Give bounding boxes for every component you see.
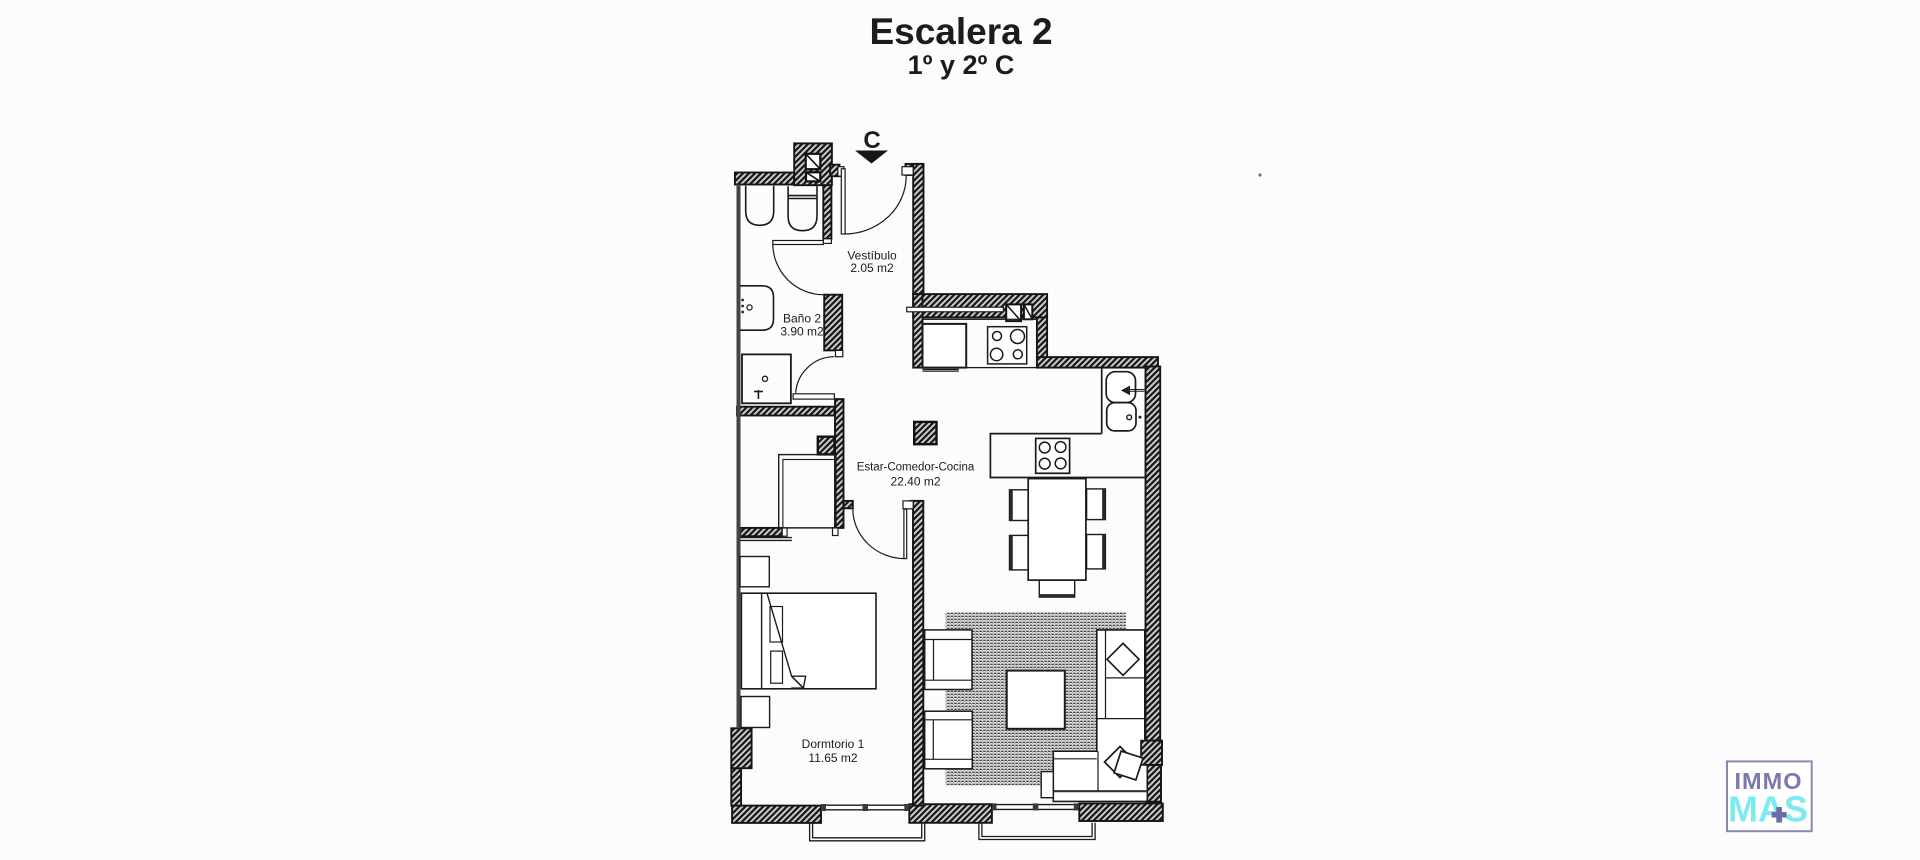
svg-text:C: C [863,127,880,154]
svg-text:Baño 2: Baño 2 [783,312,821,326]
svg-text:Estar-Comedor-Cocina: Estar-Comedor-Cocina [857,462,975,474]
svg-text:2.05 m2: 2.05 m2 [850,261,894,275]
svg-text:1º y 2º C: 1º y 2º C [908,50,1015,80]
svg-text:3.90 m2: 3.90 m2 [780,325,824,339]
svg-text:Dormtorio 1: Dormtorio 1 [802,737,865,751]
svg-text:11.65 m2: 11.65 m2 [808,751,857,765]
svg-text:Escalera 2: Escalera 2 [869,11,1052,52]
svg-text:MAS: MAS [1728,789,1808,830]
svg-text:22.40 m2: 22.40 m2 [890,475,940,489]
